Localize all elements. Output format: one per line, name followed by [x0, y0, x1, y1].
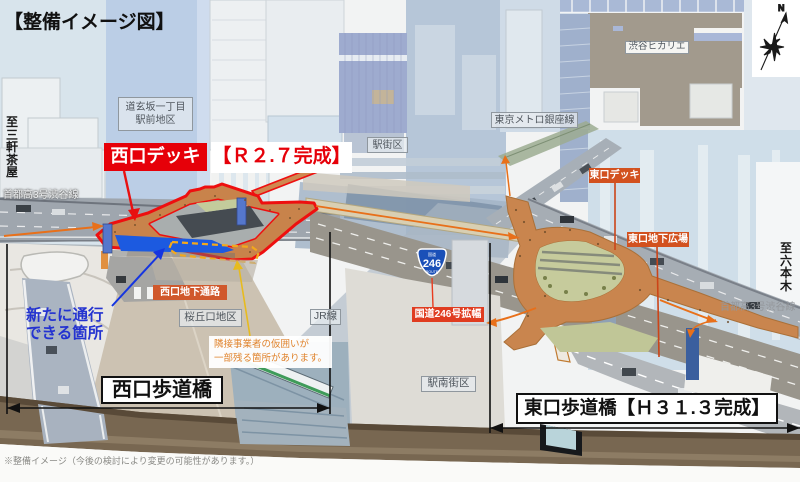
svg-text:246: 246 [423, 258, 441, 270]
svg-text:国道: 国道 [428, 251, 436, 257]
svg-text:ROUTE: ROUTE [426, 270, 439, 274]
svg-text:N: N [778, 3, 785, 13]
